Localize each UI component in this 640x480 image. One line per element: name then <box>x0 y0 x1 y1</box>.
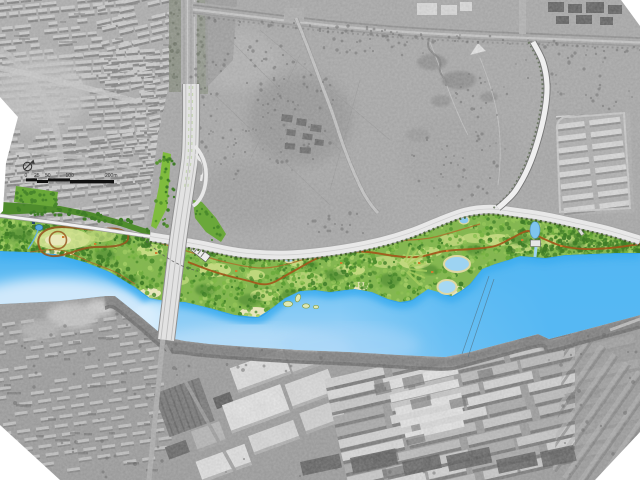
svg-text:0: 0 <box>25 173 28 179</box>
svg-text:100: 100 <box>66 173 75 179</box>
svg-text:50: 50 <box>45 173 51 179</box>
svg-text:25: 25 <box>34 173 40 179</box>
svg-text:200m: 200m <box>105 173 118 179</box>
